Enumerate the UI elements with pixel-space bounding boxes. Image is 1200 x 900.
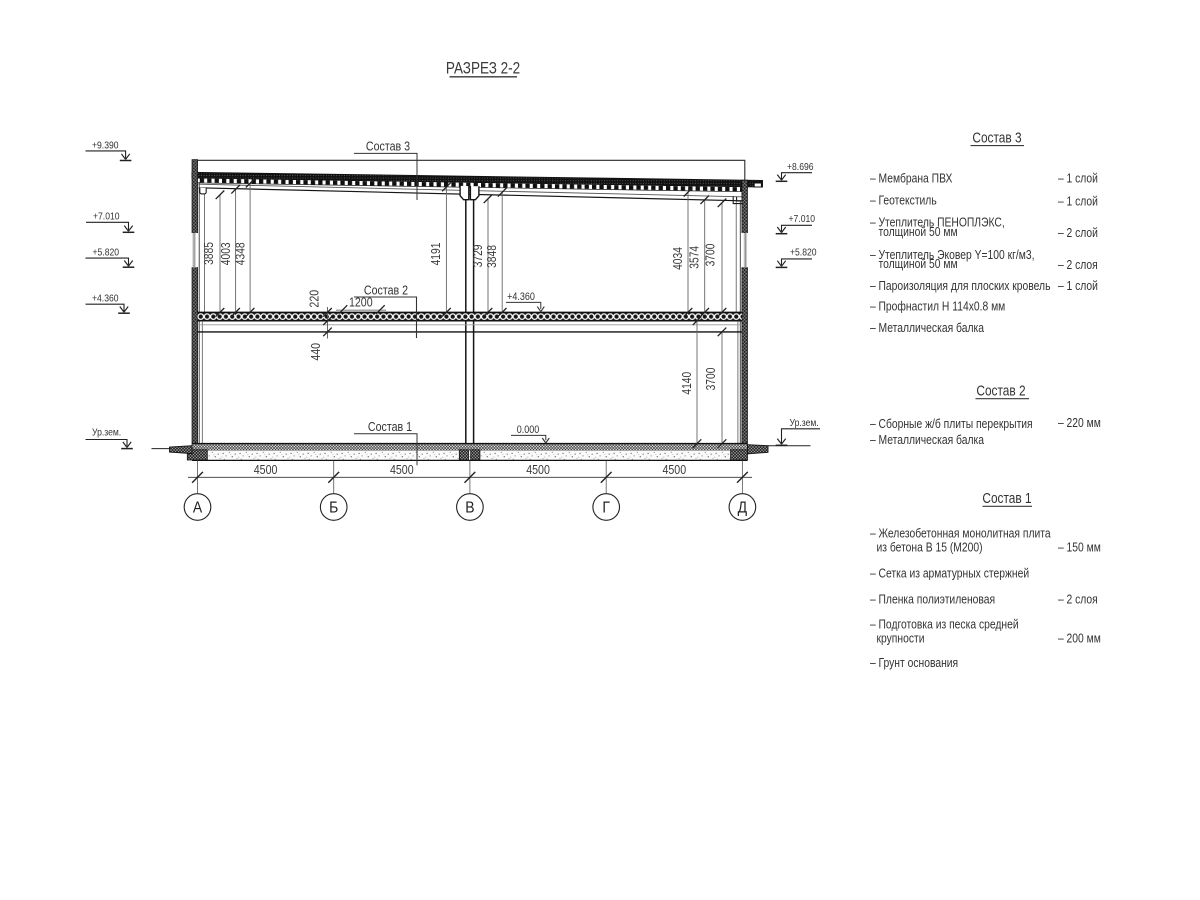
svg-text:из бетона В 15 (М200): из бетона В 15 (М200) — [877, 542, 983, 555]
svg-text:–: – — [870, 217, 876, 230]
svg-text:–: – — [1058, 227, 1064, 240]
svg-text:Состав 2: Состав 2 — [976, 382, 1025, 398]
svg-text:Г: Г — [602, 500, 610, 517]
svg-text:150 мм: 150 мм — [1067, 542, 1101, 555]
svg-text:–: – — [1058, 259, 1064, 272]
svg-text:Металлическая балка: Металлическая балка — [879, 322, 985, 335]
svg-text:–: – — [870, 194, 876, 207]
svg-text:Состав 1: Состав 1 — [982, 490, 1031, 506]
svg-text:толщиной 50 мм: толщиной 50 мм — [879, 258, 958, 271]
svg-text:Подготовка из песка средней: Подготовка из песка средней — [879, 619, 1019, 632]
svg-text:0.000: 0.000 — [517, 424, 540, 436]
svg-text:220 мм: 220 мм — [1067, 417, 1101, 430]
svg-text:Ур.зем.: Ур.зем. — [790, 417, 819, 429]
svg-text:–: – — [1058, 196, 1064, 209]
svg-text:200 мм: 200 мм — [1067, 632, 1101, 645]
svg-text:–: – — [870, 593, 876, 606]
svg-text:В: В — [465, 500, 474, 517]
svg-text:–: – — [870, 249, 876, 262]
svg-text:4140: 4140 — [681, 372, 694, 395]
svg-text:4500: 4500 — [526, 462, 550, 477]
svg-text:Ур.зем.: Ур.зем. — [92, 427, 121, 439]
svg-text:Сборные ж/б плиты перекрытия: Сборные ж/б плиты перекрытия — [879, 418, 1033, 431]
svg-text:Состав 3: Состав 3 — [972, 129, 1021, 145]
svg-text:–: – — [870, 657, 876, 670]
svg-text:крупности: крупности — [877, 632, 925, 645]
svg-text:1200: 1200 — [349, 294, 373, 309]
svg-text:Грунт основания: Грунт основания — [879, 657, 959, 670]
svg-text:Сетка из арматурных стержней: Сетка из арматурных стержней — [879, 568, 1030, 581]
svg-text:РАЗРЕЗ 2-2: РАЗРЕЗ 2-2 — [446, 59, 520, 78]
svg-text:2 слоя: 2 слоя — [1067, 593, 1098, 606]
svg-text:–: – — [870, 418, 876, 431]
svg-text:+5.820: +5.820 — [93, 247, 120, 259]
svg-text:4500: 4500 — [390, 462, 414, 477]
svg-text:–: – — [1058, 417, 1064, 430]
svg-text:–: – — [1058, 280, 1064, 293]
svg-text:4003: 4003 — [220, 242, 233, 265]
svg-text:Состав 3: Состав 3 — [366, 138, 411, 153]
svg-text:+9.390: +9.390 — [92, 140, 119, 152]
svg-text:–: – — [870, 322, 876, 335]
svg-text:Геотекстиль: Геотекстиль — [879, 194, 937, 207]
svg-text:Б: Б — [329, 500, 338, 517]
svg-text:4348: 4348 — [235, 242, 248, 265]
svg-text:–: – — [870, 172, 876, 185]
svg-text:Пароизоляция для плоских крове: Пароизоляция для плоских кровель — [879, 280, 1051, 293]
svg-text:Состав 1: Состав 1 — [368, 419, 413, 434]
svg-text:–: – — [870, 301, 876, 314]
svg-text:3700: 3700 — [705, 368, 718, 391]
svg-text:4191: 4191 — [430, 243, 443, 266]
svg-text:–: – — [1058, 542, 1064, 555]
svg-text:3700: 3700 — [705, 244, 718, 267]
svg-text:–: – — [870, 434, 876, 447]
svg-text:+7.010: +7.010 — [789, 213, 816, 225]
svg-text:4500: 4500 — [662, 462, 686, 477]
svg-text:Железобетонная монолитная пли: Железобетонная монолитная плита — [879, 527, 1052, 540]
svg-text:–: – — [870, 527, 876, 540]
svg-text:220: 220 — [307, 289, 322, 307]
svg-text:толщиной 50 мм: толщиной 50 мм — [879, 226, 958, 239]
svg-text:1 слой: 1 слой — [1067, 196, 1098, 209]
svg-text:Д: Д — [738, 500, 747, 517]
svg-text:Пленка полиэтиленовая: Пленка полиэтиленовая — [879, 593, 996, 606]
svg-text:–: – — [870, 619, 876, 632]
svg-text:3574: 3574 — [688, 245, 701, 268]
svg-text:3885: 3885 — [203, 242, 216, 265]
svg-text:–: – — [1058, 632, 1064, 645]
svg-text:Мембрана ПВХ: Мембрана ПВХ — [879, 172, 953, 185]
svg-text:–: – — [1058, 172, 1064, 185]
svg-text:2 слой: 2 слой — [1067, 227, 1098, 240]
svg-text:+8.696: +8.696 — [787, 161, 814, 173]
svg-text:Профнастил Н 114х0.8 мм: Профнастил Н 114х0.8 мм — [879, 301, 1006, 314]
svg-text:+4.360: +4.360 — [507, 291, 535, 303]
svg-text:440: 440 — [308, 343, 323, 361]
svg-text:1 слой: 1 слой — [1067, 280, 1098, 293]
svg-text:3848: 3848 — [486, 245, 499, 268]
svg-text:+7.010: +7.010 — [93, 211, 120, 223]
svg-text:4034: 4034 — [672, 247, 685, 270]
svg-text:А: А — [193, 500, 202, 517]
svg-text:3729: 3729 — [472, 245, 485, 268]
svg-text:2 слоя: 2 слоя — [1067, 259, 1098, 272]
svg-text:+4.360: +4.360 — [92, 293, 119, 305]
svg-text:Металлическая балка: Металлическая балка — [879, 434, 985, 447]
svg-text:–: – — [870, 280, 876, 293]
svg-text:–: – — [1058, 593, 1064, 606]
svg-text:1 слой: 1 слой — [1067, 172, 1098, 185]
svg-text:+5.820: +5.820 — [790, 247, 817, 259]
svg-text:4500: 4500 — [254, 462, 278, 477]
svg-text:–: – — [870, 568, 876, 581]
